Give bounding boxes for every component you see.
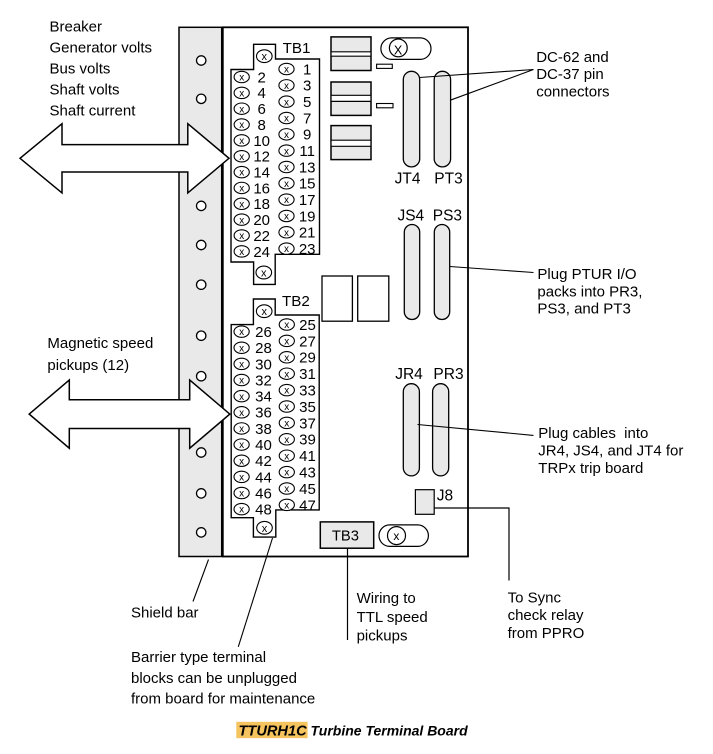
svg-text:PS3: PS3 [433,207,462,224]
svg-text:x: x [284,369,289,380]
svg-text:x: x [262,523,268,535]
svg-text:DC-37 pin: DC-37 pin [536,66,604,83]
svg-text:47: 47 [299,497,316,514]
svg-text:x: x [239,408,244,419]
svg-text:36: 36 [255,405,272,422]
svg-text:x: x [239,456,244,467]
svg-text:JT4: JT4 [395,170,421,187]
svg-text:TTL speed: TTL speed [357,609,428,626]
svg-text:x: x [239,359,244,370]
svg-text:x: x [239,505,244,516]
svg-text:from board for maintenance: from board for maintenance [131,691,315,708]
svg-text:TTURH1C: TTURH1C [239,723,308,739]
svg-text:30: 30 [255,356,272,373]
svg-text:26: 26 [255,324,272,341]
svg-text:x: x [284,130,289,141]
svg-text:x: x [284,81,289,92]
svg-text:x: x [239,73,244,84]
svg-text:18: 18 [253,196,270,213]
svg-text:17: 17 [299,192,316,209]
svg-text:13: 13 [299,159,316,176]
svg-text:J8: J8 [437,488,453,505]
svg-text:Bus volts: Bus volts [50,61,111,78]
svg-text:44: 44 [255,469,272,486]
svg-text:pickups (12): pickups (12) [47,357,129,374]
svg-text:x: x [239,343,244,354]
svg-text:x: x [284,337,289,348]
svg-text:45: 45 [299,481,316,498]
svg-text:28: 28 [255,340,272,357]
svg-text:TB1: TB1 [283,40,311,57]
svg-text:To Sync: To Sync [508,590,562,607]
svg-text:pickups: pickups [357,627,408,644]
svg-text:24: 24 [253,244,270,261]
svg-text:19: 19 [299,208,316,225]
svg-text:x: x [284,484,289,495]
svg-text:3: 3 [303,78,311,95]
svg-text:33: 33 [299,383,316,400]
svg-text:x: x [284,468,289,479]
svg-text:Magnetic speed: Magnetic speed [47,335,153,352]
svg-text:x: x [239,392,244,403]
svg-text:x: x [239,327,244,338]
svg-text:x: x [284,65,289,76]
svg-text:16: 16 [253,180,270,197]
svg-text:x: x [239,136,244,147]
svg-text:15: 15 [299,176,316,193]
svg-text:1: 1 [303,61,311,78]
svg-text:x: x [239,231,244,242]
svg-text:x: x [284,195,289,206]
svg-text:42: 42 [255,453,272,470]
svg-text:x: x [284,435,289,446]
svg-text:34: 34 [255,389,272,406]
svg-text:JR4: JR4 [395,366,423,383]
svg-text:blocks can be unplugged: blocks can be unplugged [131,670,297,687]
svg-text:x: x [239,104,244,115]
svg-text:46: 46 [255,485,272,502]
svg-text:40: 40 [255,437,272,454]
svg-text:x: x [239,215,244,226]
svg-text:JS4: JS4 [397,207,424,224]
svg-text:X: X [394,43,403,57]
svg-text:9: 9 [303,127,311,144]
svg-text:x: x [284,353,289,364]
svg-text:x: x [239,199,244,210]
svg-text:x: x [284,228,289,239]
svg-text:x: x [284,97,289,108]
svg-text:x: x [284,320,289,331]
svg-text:x: x [239,152,244,163]
svg-text:PR3: PR3 [433,366,463,383]
svg-text:x: x [239,120,244,131]
svg-text:packs into PR3,: packs into PR3, [537,283,642,300]
svg-text:43: 43 [299,465,316,482]
svg-text:5: 5 [303,94,311,111]
svg-text:7: 7 [303,110,311,127]
svg-text:x: x [239,424,244,435]
svg-text:x: x [284,179,289,190]
svg-text:14: 14 [253,165,270,182]
svg-text:Generator volts: Generator volts [50,40,153,57]
svg-text:22: 22 [253,228,270,245]
svg-text:x: x [239,376,244,387]
svg-text:x: x [239,247,244,258]
svg-text:x: x [284,419,289,430]
svg-text:TB3: TB3 [332,529,359,545]
svg-text:x: x [262,51,268,63]
svg-text:25: 25 [299,317,316,334]
svg-text:48: 48 [255,502,272,519]
svg-text:TB2: TB2 [282,293,310,310]
svg-text:20: 20 [253,212,270,229]
svg-text:32: 32 [255,372,272,389]
svg-text:2: 2 [258,69,266,86]
svg-text:x: x [393,529,399,543]
svg-text:38: 38 [255,421,272,438]
svg-text:12: 12 [253,149,270,166]
svg-text:Plug PTUR I/O: Plug PTUR I/O [537,266,636,283]
svg-text:x: x [284,402,289,413]
svg-text:35: 35 [299,399,316,416]
svg-text:Shaft current: Shaft current [50,103,137,120]
svg-text:check relay: check relay [508,607,584,624]
svg-text:from PPRO: from PPRO [508,625,585,642]
svg-text:41: 41 [299,448,316,465]
svg-text:PT3: PT3 [434,170,462,187]
svg-text:6: 6 [258,101,266,118]
svg-text:x: x [284,146,289,157]
svg-text:Plug cables into: Plug cables into [538,425,648,442]
svg-text:Barrier type terminal: Barrier type terminal [131,649,266,666]
svg-text:Shaft volts: Shaft volts [50,82,120,99]
svg-text:39: 39 [299,432,316,449]
svg-text:TRPx trip board: TRPx trip board [538,460,643,477]
svg-text:x: x [284,451,289,462]
svg-text:23: 23 [299,241,316,258]
svg-text:x: x [284,114,289,125]
svg-text:DC-62 and: DC-62 and [536,49,609,66]
svg-text:Shield bar: Shield bar [131,605,199,622]
svg-text:x: x [284,386,289,397]
svg-text:PS3, and PT3: PS3, and PT3 [537,301,630,318]
svg-text:x: x [239,472,244,483]
svg-text:x: x [284,212,289,223]
svg-text:x: x [239,489,244,500]
svg-text:x: x [284,244,289,255]
svg-text:21: 21 [299,225,316,242]
svg-text:x: x [284,501,289,512]
svg-text:37: 37 [299,415,316,432]
svg-text:x: x [284,163,289,174]
svg-text:4: 4 [258,85,266,102]
svg-text:x: x [239,168,244,179]
svg-text:x: x [239,184,244,195]
svg-text:x: x [239,88,244,99]
svg-text:Breaker: Breaker [50,19,103,36]
svg-text:Wiring to: Wiring to [357,590,416,607]
svg-text:x: x [239,440,244,451]
svg-text:JR4, JS4, and JT4 for: JR4, JS4, and JT4 for [538,443,683,460]
svg-text:11: 11 [299,143,315,160]
svg-text:x: x [261,267,267,279]
svg-text:31: 31 [299,366,316,383]
svg-text:Turbine Terminal Board: Turbine Terminal Board [311,722,469,738]
svg-text:10: 10 [253,133,270,150]
svg-text:connectors: connectors [536,83,609,100]
svg-text:x: x [261,306,267,318]
svg-text:27: 27 [299,333,316,350]
svg-text:29: 29 [299,350,316,367]
svg-text:8: 8 [258,117,266,134]
